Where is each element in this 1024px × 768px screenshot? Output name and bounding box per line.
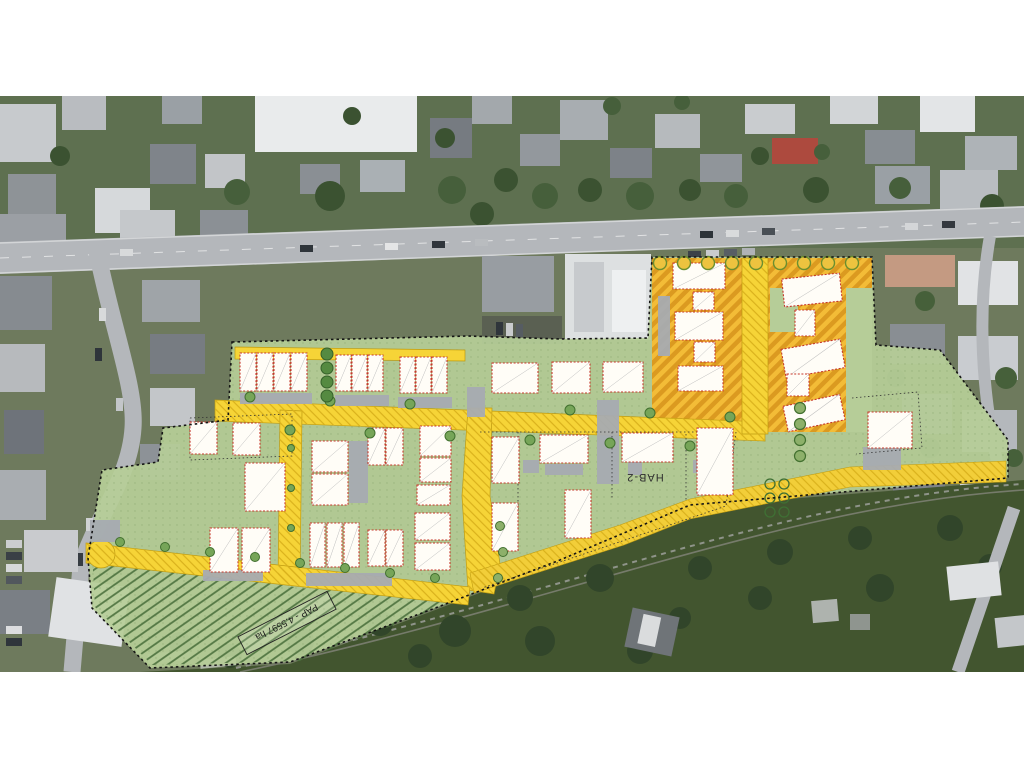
planned-tree xyxy=(678,257,691,270)
hedge-tree xyxy=(321,376,333,388)
car xyxy=(905,223,918,230)
tree xyxy=(50,146,70,166)
tree xyxy=(470,202,494,226)
planned-tree xyxy=(795,451,806,462)
parking-strip xyxy=(306,573,392,586)
tree xyxy=(848,526,872,550)
car xyxy=(432,241,445,248)
car xyxy=(742,248,755,255)
parking-strip xyxy=(545,464,583,475)
street-tree xyxy=(206,548,215,557)
building-roof xyxy=(142,280,200,322)
planned-tree xyxy=(795,435,806,446)
tree xyxy=(586,564,614,592)
street-tree xyxy=(285,425,295,435)
planned-tree xyxy=(750,257,763,270)
building-roof xyxy=(0,470,46,520)
green-pocket xyxy=(846,288,872,432)
tree xyxy=(439,615,471,647)
car xyxy=(6,540,22,548)
planned-tree xyxy=(795,419,806,430)
street-tree xyxy=(525,435,535,445)
tree xyxy=(578,178,602,202)
car xyxy=(700,231,713,238)
street-tree xyxy=(499,548,508,557)
street-tree xyxy=(116,538,125,547)
parking-strip xyxy=(335,395,389,406)
tree xyxy=(814,144,830,160)
car xyxy=(724,249,737,256)
street-tree xyxy=(386,569,395,578)
aerial-site-plan-image: PAP - 4.5597 haHAB-2 xyxy=(0,96,1024,672)
parking-strip xyxy=(523,460,539,473)
car xyxy=(385,243,398,250)
commercial-roof xyxy=(612,270,646,332)
building-roof xyxy=(162,96,202,124)
planned-tree xyxy=(774,257,787,270)
tree xyxy=(679,179,701,201)
building-roof xyxy=(62,96,106,130)
tree xyxy=(315,181,345,211)
warehouse-roof xyxy=(255,96,417,152)
building-roof xyxy=(150,388,195,426)
building-roof xyxy=(150,144,196,184)
tree xyxy=(507,585,533,611)
building-roof xyxy=(150,334,205,374)
tree xyxy=(937,515,963,541)
street-tree xyxy=(341,564,350,573)
building-roof xyxy=(24,530,78,572)
building-roof xyxy=(0,276,52,330)
tree xyxy=(724,184,748,208)
building-roof xyxy=(830,96,878,124)
parking-strip xyxy=(658,296,670,356)
building-roof xyxy=(360,160,405,192)
street-tree xyxy=(645,408,655,418)
car xyxy=(300,245,313,252)
tree xyxy=(889,177,911,199)
tree xyxy=(751,147,769,165)
zone-label: HAB-2 xyxy=(626,471,663,483)
car xyxy=(942,221,955,228)
hedge-tree xyxy=(321,362,333,374)
street-tree xyxy=(405,399,415,409)
tree xyxy=(915,291,935,311)
building-roof xyxy=(560,100,608,140)
street-tree xyxy=(496,522,505,531)
car xyxy=(506,323,513,336)
tree xyxy=(603,97,621,115)
screenshot-canvas: PAP - 4.5597 haHAB-2 xyxy=(0,0,1024,768)
tree xyxy=(343,107,361,125)
street-tree xyxy=(288,485,295,492)
building-roof xyxy=(995,614,1024,648)
car xyxy=(762,228,775,235)
letterbox-top xyxy=(0,0,1024,96)
tree xyxy=(494,168,518,192)
car xyxy=(95,348,102,361)
car xyxy=(726,230,739,237)
planned-tree xyxy=(798,257,811,270)
car xyxy=(475,239,488,246)
tree xyxy=(688,556,712,580)
building-roof xyxy=(4,410,44,454)
car xyxy=(496,322,503,335)
parking-strip xyxy=(90,520,120,542)
commercial-roof xyxy=(574,262,604,332)
building-roof xyxy=(865,130,915,164)
street-tree xyxy=(565,405,575,415)
building-roof xyxy=(610,148,652,178)
street-tree xyxy=(251,553,260,562)
street-tree xyxy=(445,431,455,441)
tree xyxy=(803,177,829,203)
street-tree xyxy=(288,445,295,452)
tree xyxy=(748,586,772,610)
street-tree xyxy=(685,441,695,451)
tree xyxy=(435,128,455,148)
building-roof xyxy=(700,154,742,182)
street-tree xyxy=(494,574,503,583)
street-tree xyxy=(245,392,255,402)
car xyxy=(516,324,523,337)
car xyxy=(6,564,22,572)
building-roof xyxy=(472,96,512,124)
street-tree xyxy=(161,543,170,552)
tree xyxy=(224,179,250,205)
building-roof xyxy=(946,561,1001,600)
tree xyxy=(438,176,466,204)
tree xyxy=(408,644,432,668)
street-tree xyxy=(365,428,375,438)
building-roof xyxy=(655,114,700,148)
hedge-tree xyxy=(321,348,333,360)
car xyxy=(116,398,123,411)
street-tree xyxy=(288,525,295,532)
planned-tree xyxy=(702,257,715,270)
shed xyxy=(811,599,839,623)
building-roof xyxy=(0,104,56,162)
building-roof xyxy=(0,344,45,392)
road-hatch xyxy=(742,258,768,434)
tree xyxy=(995,367,1017,389)
tree xyxy=(525,626,555,656)
planned-tree xyxy=(726,257,739,270)
tree xyxy=(866,574,894,602)
hedge-tree xyxy=(321,390,333,402)
building-roof xyxy=(520,134,560,166)
parking-strip xyxy=(467,387,485,417)
car xyxy=(6,576,22,584)
car xyxy=(99,308,106,321)
street-tree xyxy=(725,412,735,422)
building-roof xyxy=(920,96,975,132)
car xyxy=(6,552,22,560)
building-roof xyxy=(965,136,1017,170)
street-tree xyxy=(431,574,440,583)
car xyxy=(6,638,22,646)
street-tree xyxy=(296,559,305,568)
shed xyxy=(850,614,870,630)
tree xyxy=(626,182,654,210)
red-roof xyxy=(772,138,818,164)
planned-tree xyxy=(846,257,859,270)
letterbox-bottom xyxy=(0,672,1024,768)
planned-tree xyxy=(654,257,667,270)
parking-strip xyxy=(349,441,368,503)
planned-tree xyxy=(795,403,806,414)
building-roof xyxy=(482,256,554,312)
building-roof xyxy=(8,174,56,214)
building-roof xyxy=(745,104,795,134)
planned-tree xyxy=(822,257,835,270)
building-roof xyxy=(885,255,955,287)
car xyxy=(120,249,133,256)
car xyxy=(6,626,22,634)
street-tree xyxy=(605,438,615,448)
tree xyxy=(532,183,558,209)
tree xyxy=(767,539,793,565)
